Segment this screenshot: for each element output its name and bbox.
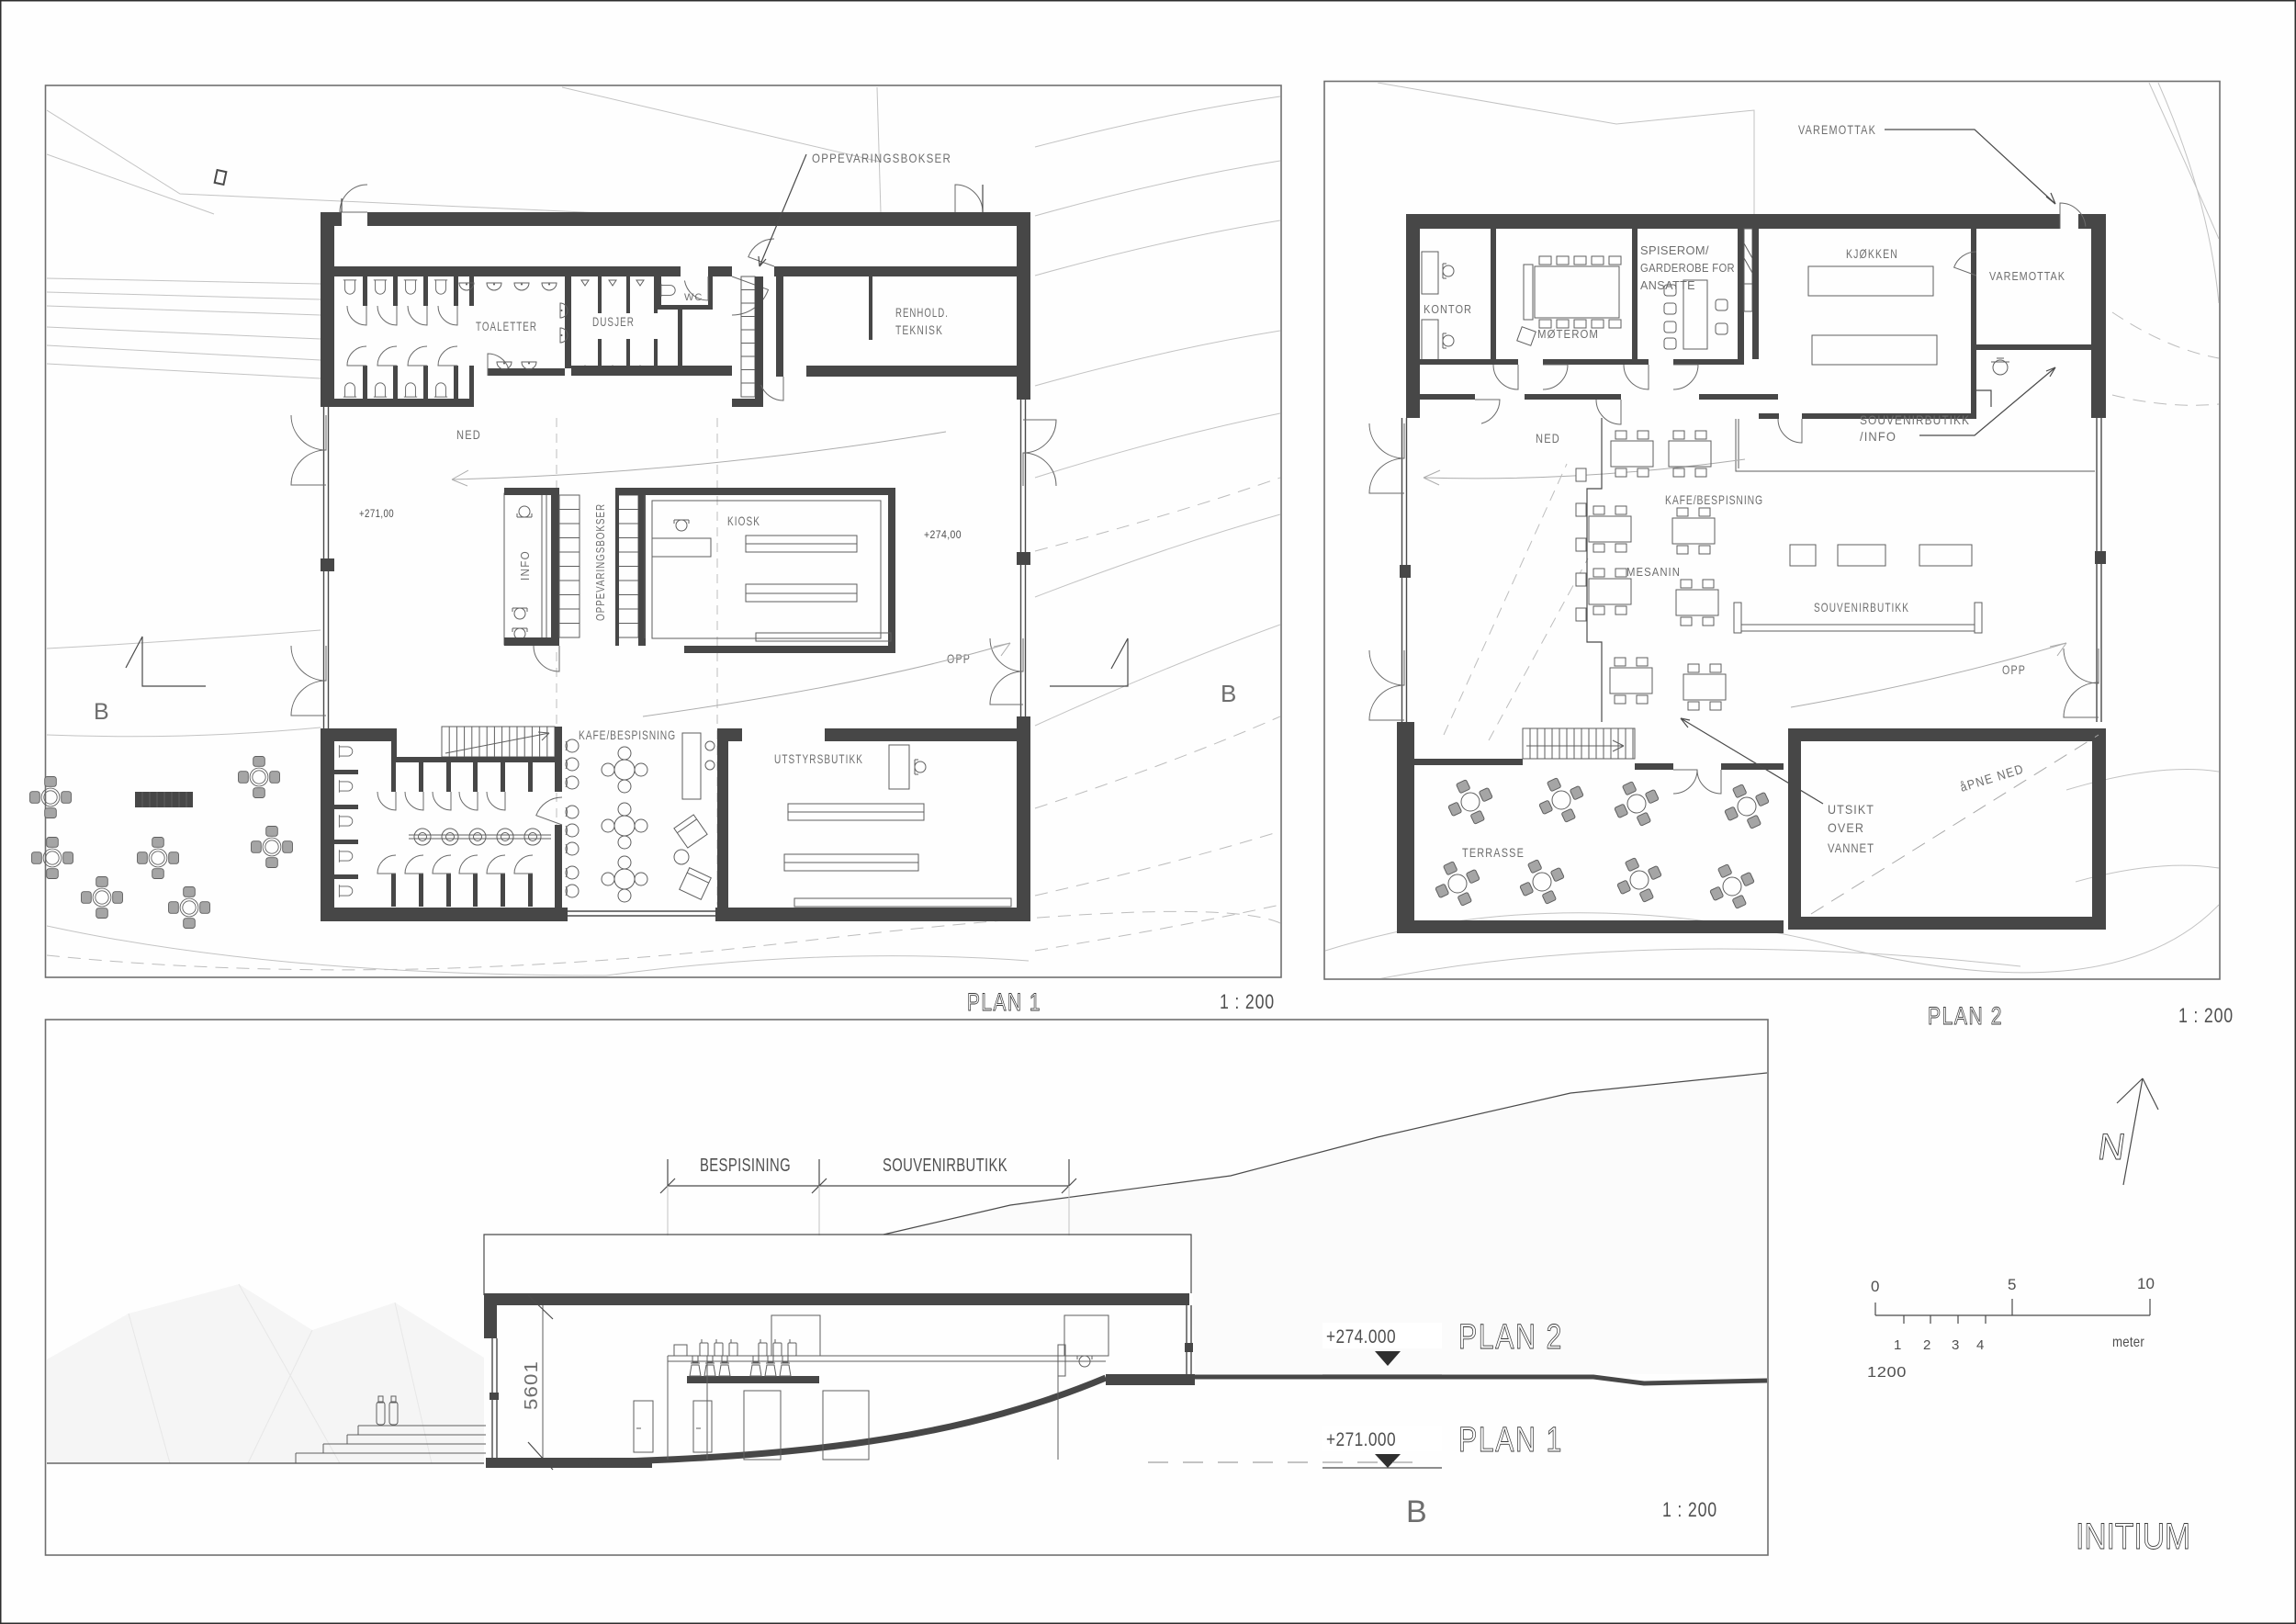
svg-text:TEKNISK: TEKNISK: [895, 322, 943, 337]
svg-text:VAREMOTTAK: VAREMOTTAK: [1798, 122, 1876, 137]
svg-text:+271,00: +271,00: [359, 507, 394, 520]
svg-text:TOALETTER: TOALETTER: [476, 319, 537, 333]
svg-text:B: B: [94, 699, 110, 725]
svg-text:DUSJER: DUSJER: [592, 314, 635, 329]
svg-text:TERRASSE: TERRASSE: [1462, 845, 1525, 860]
svg-text:B: B: [1221, 680, 1237, 707]
svg-text:KJØKKEN: KJØKKEN: [1846, 246, 1898, 261]
svg-text:PLAN 2: PLAN 2: [1458, 1318, 1563, 1357]
svg-text:meter: meter: [2112, 1335, 2144, 1350]
svg-text:PLAN 1: PLAN 1: [967, 988, 1041, 1016]
svg-text:5: 5: [2008, 1276, 2016, 1293]
svg-text:2: 2: [1923, 1337, 1930, 1353]
svg-text:SOUVENIRBUTIKK: SOUVENIRBUTIKK: [883, 1156, 1007, 1176]
svg-text:KIOSK: KIOSK: [727, 513, 760, 528]
svg-text:NED: NED: [456, 427, 481, 442]
svg-text:KAFE/BESPISNING: KAFE/BESPISNING: [1665, 492, 1763, 507]
svg-text:KAFE/BESPISNING: KAFE/BESPISNING: [579, 727, 676, 742]
svg-text:+271.000: +271.000: [1326, 1429, 1396, 1450]
svg-text:SPISEROM/: SPISEROM/: [1640, 244, 1709, 257]
svg-text:UTSTYRSBUTIKK: UTSTYRSBUTIKK: [774, 751, 863, 766]
svg-text:1200: 1200: [1867, 1365, 1907, 1381]
svg-text:10: 10: [2137, 1275, 2155, 1292]
svg-text:GARDEROBE FOR: GARDEROBE FOR: [1640, 262, 1735, 275]
svg-text:3: 3: [1952, 1337, 1959, 1353]
svg-text:UTSIKT: UTSIKT: [1828, 802, 1874, 817]
svg-text:SOUVENIRBUTIKK: SOUVENIRBUTIKK: [1814, 600, 1909, 615]
svg-text:OPPEVARINGSBOKSER: OPPEVARINGSBOKSER: [812, 151, 951, 165]
svg-text:1 : 200: 1 : 200: [1662, 1498, 1717, 1521]
svg-text:NED: NED: [1536, 431, 1560, 445]
svg-text:VAREMOTTAK: VAREMOTTAK: [1989, 269, 2065, 283]
svg-text:1: 1: [1894, 1337, 1901, 1353]
svg-text:SOUVENIRBUTIKK: SOUVENIRBUTIKK: [1860, 412, 1970, 427]
svg-text:ANSATTE: ANSATTE: [1640, 279, 1695, 292]
svg-text:OVER: OVER: [1828, 820, 1864, 835]
svg-text:0: 0: [1871, 1278, 1879, 1295]
svg-text:5601: 5601: [522, 1360, 542, 1410]
svg-text:4: 4: [1976, 1337, 1984, 1353]
svg-text:OPPEVARINGSBOKSER: OPPEVARINGSBOKSER: [593, 503, 607, 621]
svg-text:OPP: OPP: [947, 651, 971, 666]
svg-text:VANNET: VANNET: [1828, 840, 1874, 855]
svg-text:+274.000: +274.000: [1326, 1326, 1396, 1348]
svg-text:MØTEROM: MØTEROM: [1537, 327, 1599, 341]
svg-text:/INFO: /INFO: [1860, 429, 1896, 444]
svg-text:INFO: INFO: [518, 550, 532, 581]
svg-text:INITIUM: INITIUM: [2076, 1517, 2190, 1557]
svg-text:PLAN 1: PLAN 1: [1458, 1421, 1563, 1460]
svg-text:OPP: OPP: [2002, 662, 2026, 677]
svg-text:B: B: [1406, 1494, 1428, 1529]
svg-text:MESANIN: MESANIN: [1626, 565, 1681, 579]
svg-text:PLAN 2: PLAN 2: [1928, 1002, 2003, 1030]
svg-text:+274,00: +274,00: [924, 528, 962, 541]
svg-text:1 : 200: 1 : 200: [1220, 990, 1275, 1013]
svg-text:WC: WC: [684, 292, 703, 303]
svg-text:RENHOLD.: RENHOLD.: [895, 305, 949, 320]
svg-text:BESPISINING: BESPISINING: [700, 1156, 791, 1176]
svg-text:KONTOR: KONTOR: [1424, 302, 1472, 316]
svg-text:1 : 200: 1 : 200: [2178, 1004, 2234, 1027]
